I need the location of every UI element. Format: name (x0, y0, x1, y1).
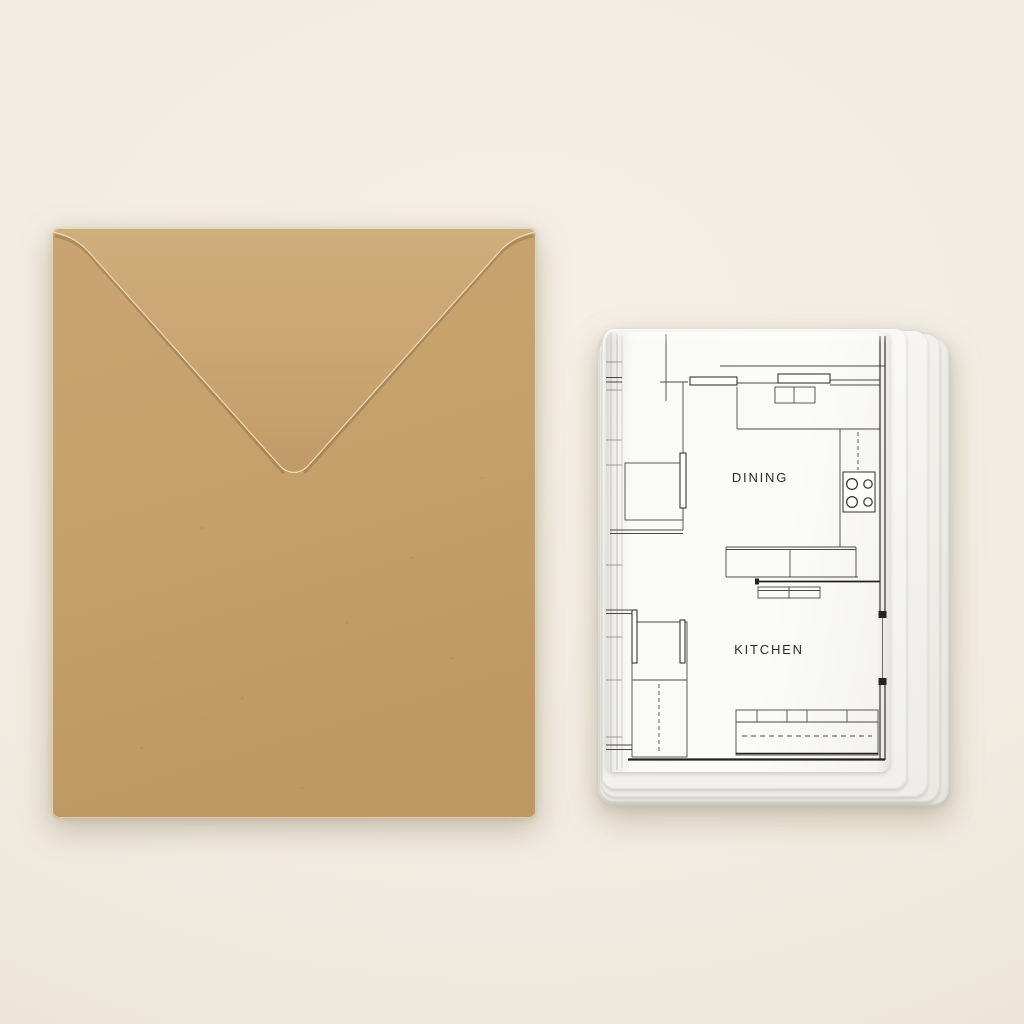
photo-scene: DINING KITCHEN (0, 0, 1024, 1024)
kitchen-label: KITCHEN (734, 642, 804, 657)
floor-plan-card: DINING KITCHEN (606, 332, 890, 772)
envelope-graphic (52, 228, 536, 818)
kraft-envelope (52, 228, 536, 818)
plan-wall-blocks (632, 374, 830, 663)
plan-heavy-walls (628, 336, 887, 760)
floor-plan-drawing: DINING KITCHEN (606, 332, 890, 772)
card-stack: DINING KITCHEN (588, 324, 960, 820)
stove-burners-icon (843, 472, 875, 512)
fold-edge-lines (606, 332, 622, 772)
dining-label: DINING (732, 470, 788, 485)
plan-thin-lines (606, 334, 885, 757)
